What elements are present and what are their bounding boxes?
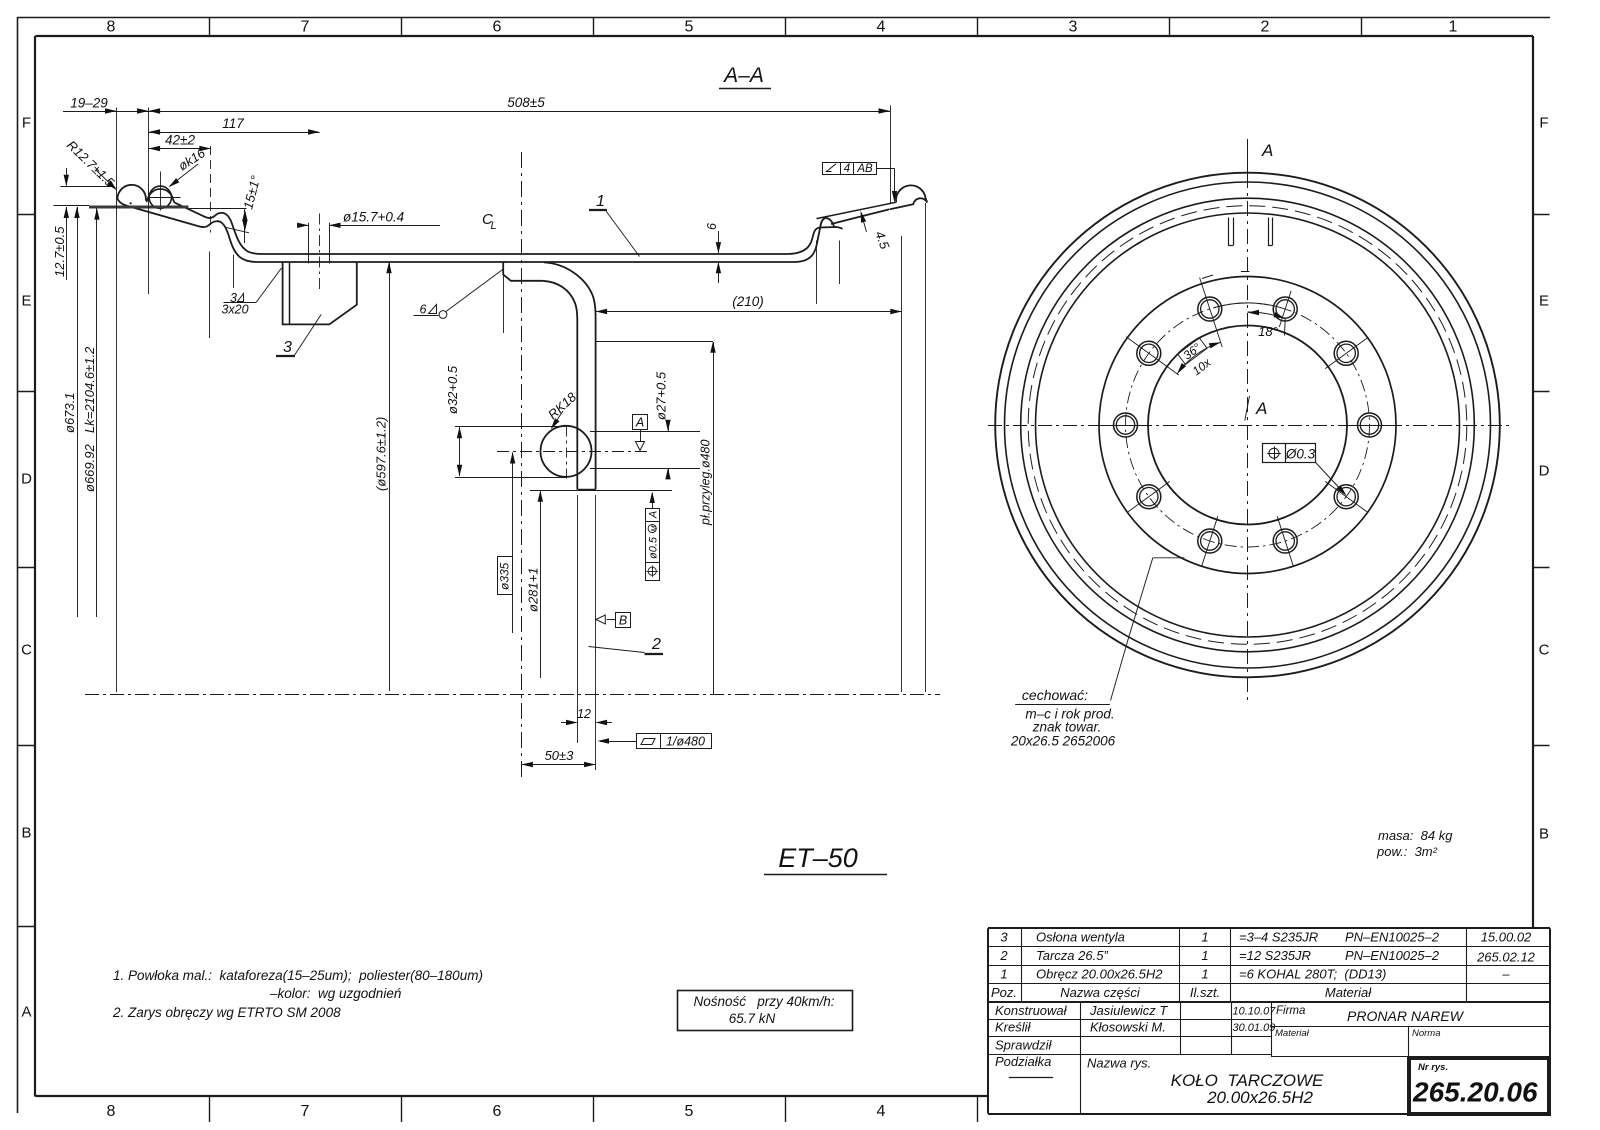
svg-text:ø335: ø335 (498, 562, 512, 590)
svg-text:F: F (22, 115, 31, 132)
svg-text:4.5: 4.5 (872, 229, 893, 252)
svg-text:ø27+0.5: ø27+0.5 (654, 371, 669, 420)
svg-text:–: – (1501, 967, 1510, 982)
svg-text:ø15.7+0.4: ø15.7+0.4 (343, 210, 404, 225)
svg-text:A: A (648, 511, 660, 519)
svg-text:C: C (1539, 642, 1550, 659)
svg-text:7: 7 (301, 19, 310, 36)
svg-text:1: 1 (596, 193, 605, 210)
svg-text:A: A (635, 416, 644, 430)
svg-text:2: 2 (651, 636, 661, 653)
svg-text:(ø597.6±1.2): (ø597.6±1.2) (374, 417, 389, 491)
svg-text:265.02.12: 265.02.12 (1476, 950, 1536, 965)
svg-text:D: D (21, 471, 32, 488)
svg-text:ø0.5: ø0.5 (648, 536, 660, 559)
svg-text:4: 4 (877, 1103, 886, 1120)
svg-text:Osłona wentyla: Osłona wentyla (1036, 930, 1125, 945)
svg-text:masa: 84 kg: masa: 84 kg (1378, 828, 1453, 843)
svg-text:10.10.07: 10.10.07 (1233, 1006, 1277, 1018)
svg-text:PRONAR NAREW: PRONAR NAREW (1347, 1008, 1465, 1024)
svg-text:12: 12 (577, 707, 591, 721)
svg-text:4: 4 (844, 163, 850, 175)
svg-text:19–29: 19–29 (70, 96, 108, 111)
svg-text:3: 3 (1000, 930, 1008, 945)
svg-text:8: 8 (107, 1103, 116, 1120)
svg-text:4: 4 (877, 19, 886, 36)
svg-text:2. Zarys obręczy wg ETRTO SM 2: 2. Zarys obręczy wg ETRTO SM 2008 (112, 1005, 341, 1020)
svg-text:C: C (21, 642, 32, 659)
svg-text:1: 1 (1000, 967, 1007, 982)
svg-text:3x20: 3x20 (221, 303, 248, 317)
svg-text:Obręcz 20.00x26.5H2: Obręcz 20.00x26.5H2 (1036, 967, 1163, 982)
svg-text:1: 1 (1201, 930, 1208, 945)
svg-text:2: 2 (999, 948, 1008, 963)
svg-text:15±1°: 15±1° (240, 174, 263, 211)
svg-text:20.00x26.5H2: 20.00x26.5H2 (1206, 1088, 1313, 1107)
svg-text:6: 6 (493, 19, 502, 36)
svg-text:A: A (21, 1004, 31, 1021)
svg-text:Nośność przy 40km/h:: Nośność przy 40km/h: (693, 994, 834, 1009)
svg-text:cechować:: cechować: (1022, 687, 1088, 703)
svg-text:1. Powłoka mal.: kataforeza(1: 1. Powłoka mal.: kataforeza(15–25um); po… (113, 968, 483, 983)
svg-text:1/ø480: 1/ø480 (666, 735, 705, 749)
svg-text:E: E (21, 293, 31, 310)
svg-text:6: 6 (493, 1103, 502, 1120)
svg-text:B: B (21, 825, 31, 842)
svg-text:Jasiulewicz T: Jasiulewicz T (1089, 1003, 1168, 1018)
svg-text:117: 117 (222, 116, 244, 131)
svg-text:A: A (1261, 141, 1273, 160)
svg-text:B: B (1539, 826, 1549, 843)
svg-text:B: B (619, 614, 627, 628)
svg-text:znak towar.: znak towar. (1032, 720, 1102, 735)
svg-text:2: 2 (1261, 19, 1270, 36)
svg-text:F: F (1539, 115, 1548, 132)
svg-text:1: 1 (1201, 948, 1208, 963)
svg-text:A–A: A–A (722, 64, 764, 87)
svg-text:pow.: 3m²: pow.: 3m² (1376, 844, 1438, 859)
svg-text:ø281+1: ø281+1 (526, 568, 541, 612)
svg-text:RK18: RK18 (545, 389, 580, 422)
svg-text:15.00.02: 15.00.02 (1481, 930, 1532, 945)
svg-text:8: 8 (107, 19, 116, 36)
svg-text:Podziałka: Podziałka (995, 1054, 1051, 1069)
svg-text:12.7±0.5: 12.7±0.5 (52, 226, 67, 277)
svg-text:Firma: Firma (1276, 1005, 1305, 1017)
svg-text:Il.szt.: Il.szt. (1190, 985, 1220, 1000)
svg-text:1: 1 (1201, 967, 1208, 982)
svg-text:Konstruował: Konstruował (995, 1003, 1068, 1018)
svg-text:ø32+0.5: ø32+0.5 (445, 365, 460, 414)
svg-text:PN–EN10025–2: PN–EN10025–2 (1345, 948, 1440, 963)
svg-text:3: 3 (1069, 19, 1078, 36)
svg-text:A: A (1255, 399, 1267, 418)
svg-text:1: 1 (1449, 19, 1458, 36)
svg-text:pł.przyleg.ø480: pł.przyleg.ø480 (699, 439, 713, 526)
svg-text:265.20.06: 265.20.06 (1412, 1077, 1538, 1108)
svg-text:L: L (491, 220, 497, 232)
svg-text:–kolor: wg uzgodnień: –kolor: wg uzgodnień (269, 986, 401, 1001)
svg-text:20x26.5 2652006: 20x26.5 2652006 (1010, 734, 1116, 749)
svg-text:=3–4 S235JR: =3–4 S235JR (1239, 930, 1318, 945)
svg-text:65.7 kN: 65.7 kN (729, 1011, 776, 1026)
svg-text:6: 6 (705, 223, 719, 230)
svg-text:Lk=2104.6±1.2: Lk=2104.6±1.2 (82, 346, 97, 433)
svg-text:AB: AB (856, 163, 873, 175)
svg-text:5: 5 (685, 19, 694, 36)
svg-text:Norma: Norma (1412, 1028, 1441, 1039)
svg-text:Nr rys.: Nr rys. (1418, 1062, 1448, 1073)
svg-text:=12 S235JR: =12 S235JR (1239, 948, 1311, 963)
svg-text:3: 3 (283, 339, 292, 356)
svg-text:Poz.: Poz. (991, 985, 1017, 1000)
svg-text:Nazwa rys.: Nazwa rys. (1087, 1056, 1151, 1071)
svg-text:PN–EN10025–2: PN–EN10025–2 (1345, 930, 1440, 945)
svg-text:50±3: 50±3 (545, 748, 575, 763)
svg-text:5: 5 (685, 1103, 694, 1120)
svg-text:D: D (1539, 463, 1550, 480)
svg-text:ET–50: ET–50 (778, 843, 858, 873)
svg-text:Ø0.3: Ø0.3 (1285, 447, 1316, 462)
svg-text:Tarcza 26.5”: Tarcza 26.5” (1036, 948, 1108, 963)
svg-text:42±2: 42±2 (165, 133, 195, 148)
svg-text:ø669.92: ø669.92 (82, 444, 97, 492)
svg-text:(210): (210) (732, 294, 764, 309)
svg-text:508±5: 508±5 (507, 95, 545, 110)
svg-text:30.01.09: 30.01.09 (1233, 1022, 1276, 1034)
svg-text:M: M (649, 525, 658, 532)
svg-text:E: E (1539, 293, 1549, 310)
svg-text:Sprawdził: Sprawdził (995, 1038, 1052, 1053)
svg-text:18°: 18° (1258, 324, 1278, 339)
svg-text:7: 7 (301, 1103, 310, 1120)
svg-text:Kreślił: Kreślił (995, 1020, 1032, 1035)
svg-text:6: 6 (420, 303, 427, 317)
svg-text:=6 KOHAL 280T; (DD13): =6 KOHAL 280T; (DD13) (1239, 967, 1386, 982)
svg-text:Nazwa części: Nazwa części (1060, 985, 1141, 1000)
svg-text:Kłosowski M.: Kłosowski M. (1090, 1020, 1166, 1035)
svg-text:Materiał: Materiał (1275, 1028, 1310, 1039)
svg-text:ø673.1: ø673.1 (62, 393, 77, 433)
svg-text:Materiał: Materiał (1325, 985, 1372, 1000)
